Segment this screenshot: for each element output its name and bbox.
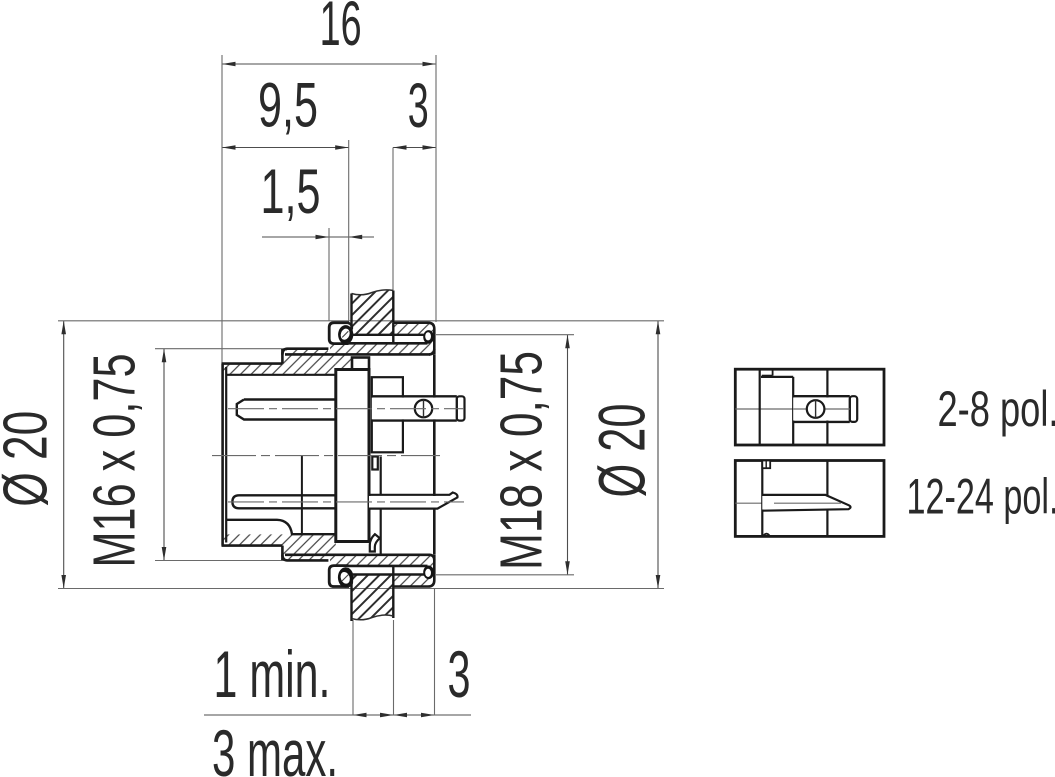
svg-text:12-24 pol.: 12-24 pol. [907,469,1055,525]
svg-text:M16 x 0,75: M16 x 0,75 [82,354,148,568]
svg-text:3: 3 [448,637,471,711]
svg-text:9,5: 9,5 [258,71,318,141]
svg-text:2-8 pol.: 2-8 pol. [938,381,1055,437]
svg-text:Ø 20: Ø 20 [585,404,659,498]
svg-text:Ø 20: Ø 20 [0,411,61,507]
svg-text:M18 x 0,75: M18 x 0,75 [489,351,555,570]
svg-text:16: 16 [320,0,362,59]
svg-text:1 min.: 1 min. [214,637,331,711]
svg-text:3 max.: 3 max. [212,716,338,777]
svg-text:1,5: 1,5 [261,157,321,227]
svg-text:3: 3 [408,71,429,141]
